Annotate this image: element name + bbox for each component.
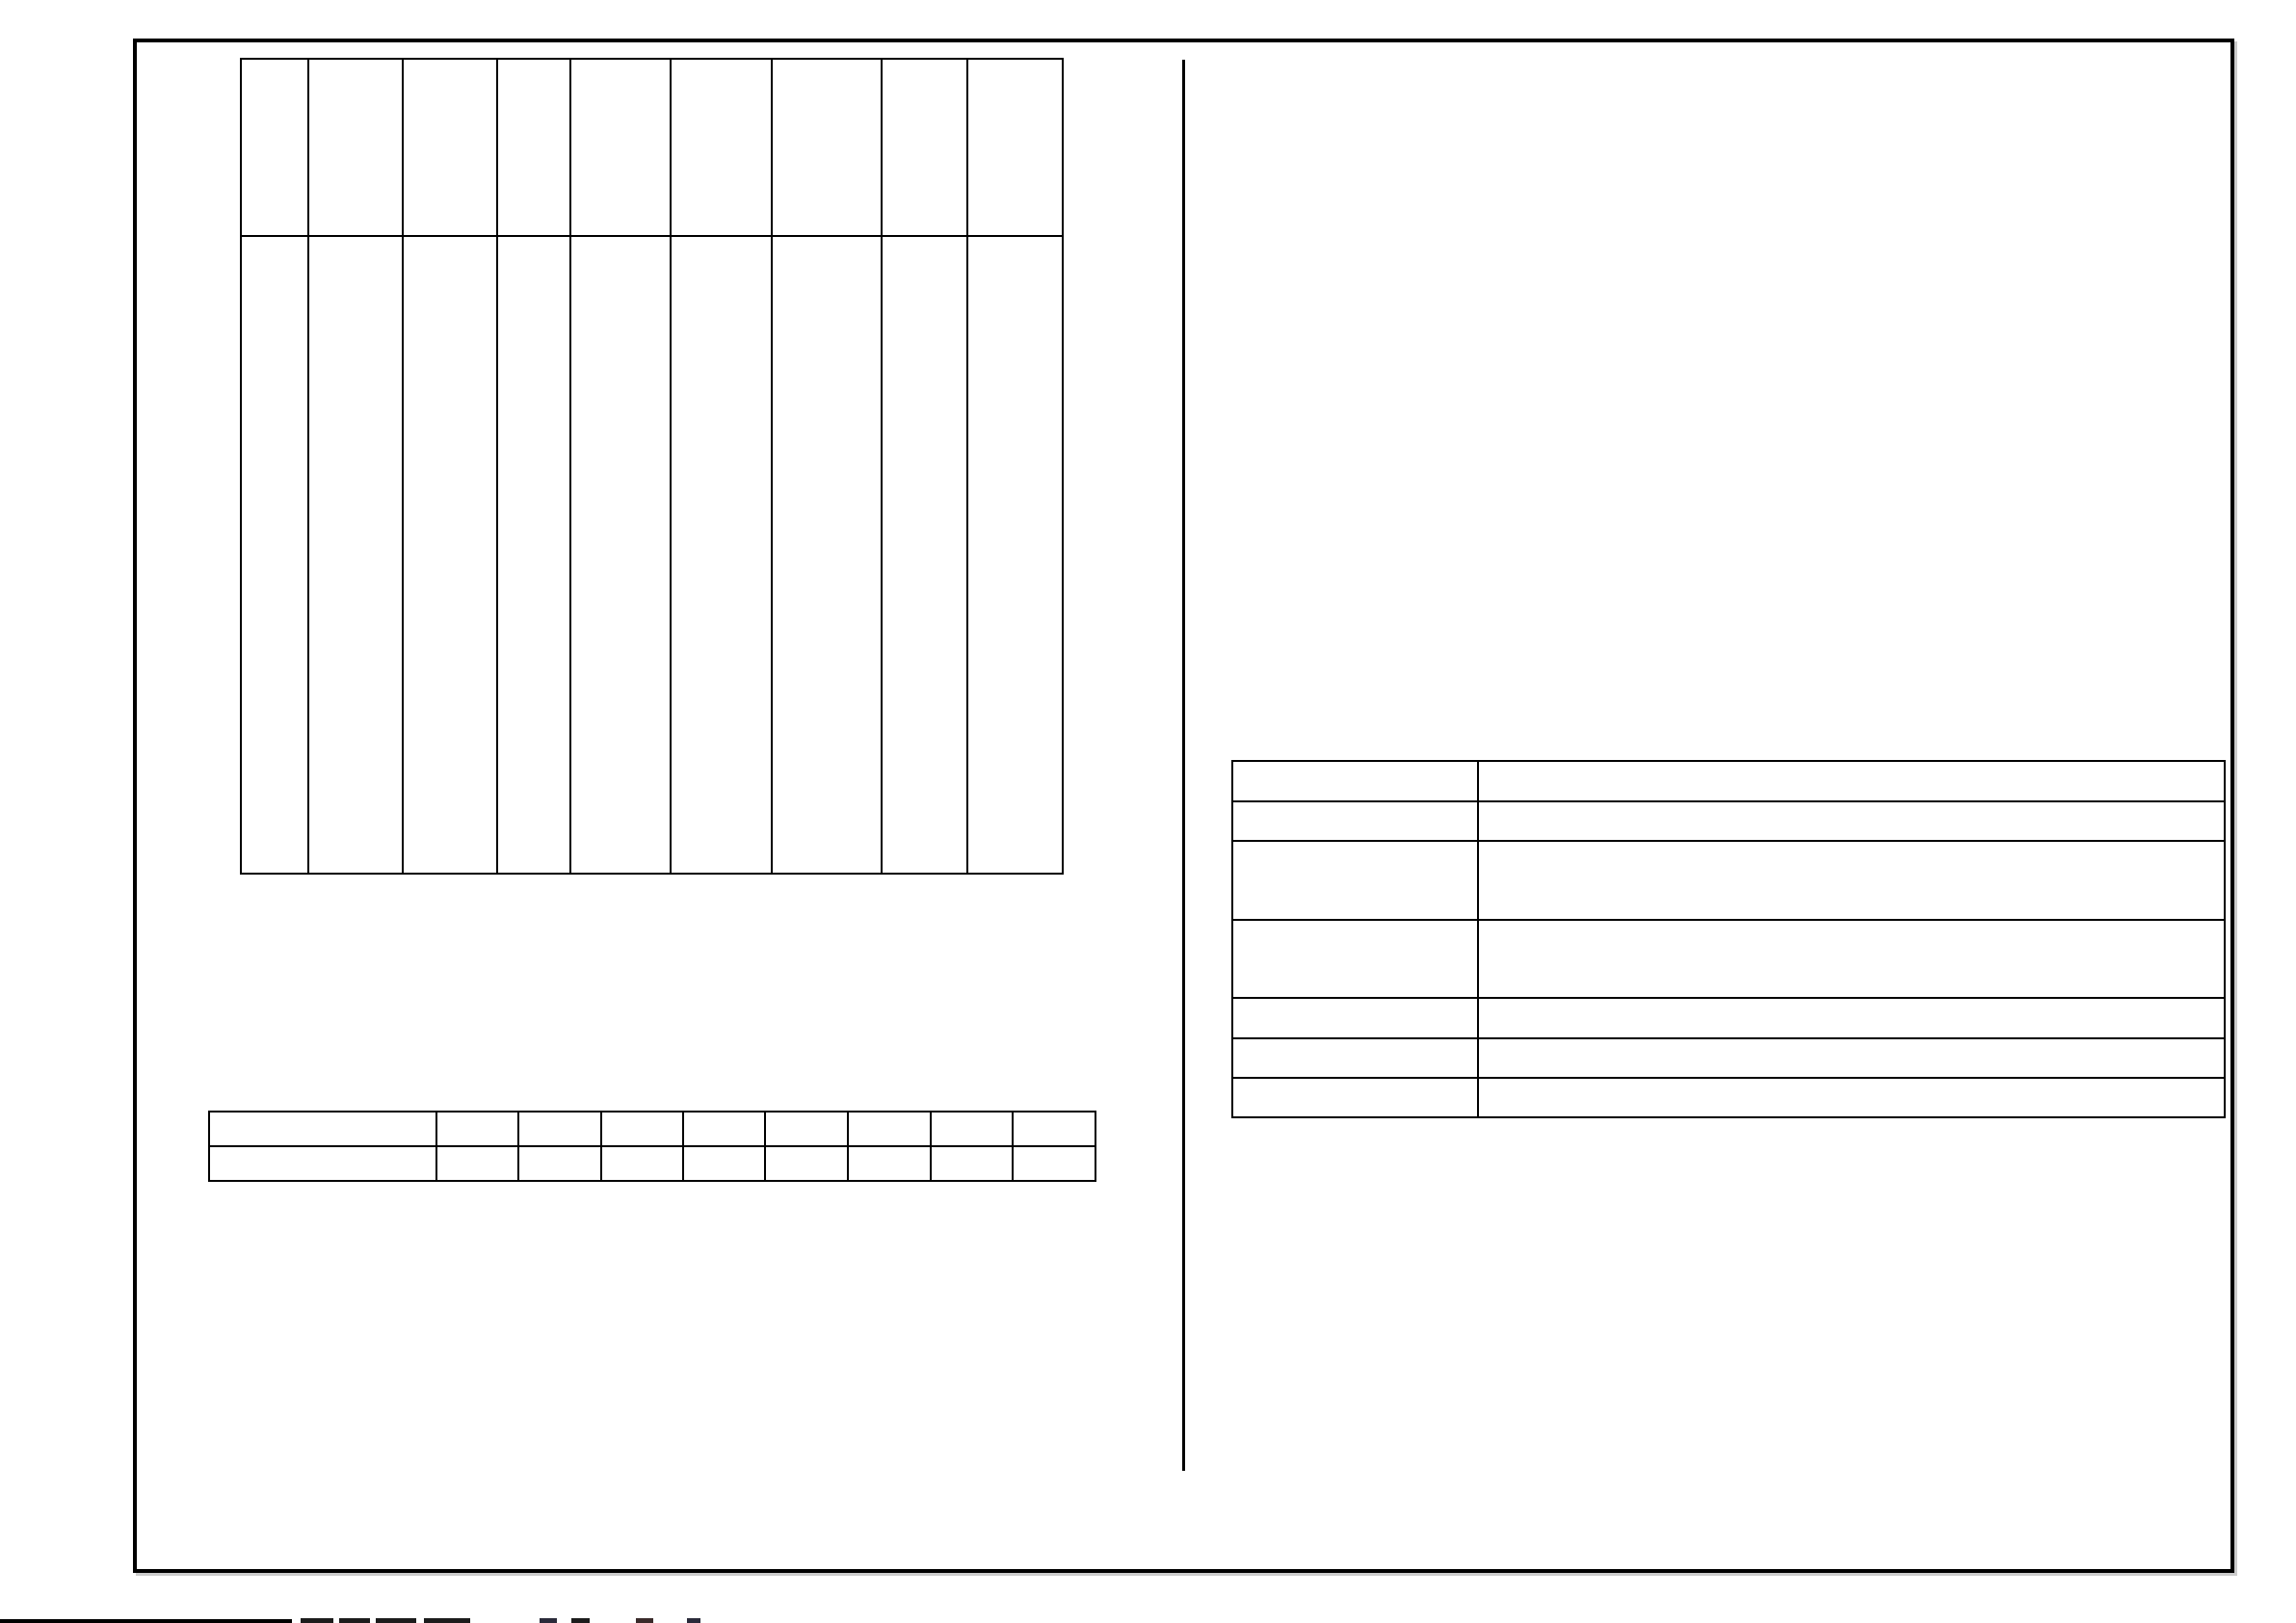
notes-cell [1232, 998, 1478, 1038]
strip-cell [1013, 1146, 1095, 1181]
schedule-body-cell [497, 236, 570, 874]
notes-cell [1478, 841, 2225, 920]
schedule-header-cell [497, 59, 570, 236]
strip-cell [518, 1112, 601, 1146]
footer-text-fragment [376, 1618, 416, 1623]
strip-cell [765, 1112, 848, 1146]
strip-cell [209, 1112, 436, 1146]
schedule-body-cell [882, 236, 967, 874]
strip-cell [601, 1146, 683, 1181]
schedule-body-cell [403, 236, 497, 874]
strip-cell [765, 1146, 848, 1181]
notes-cell [1478, 920, 2225, 998]
strip-table [208, 1111, 1096, 1182]
schedule-header-cell [403, 59, 497, 236]
strip-cell [931, 1146, 1013, 1181]
strip-cell [683, 1146, 765, 1181]
footer-text-fragment [636, 1618, 653, 1623]
notes-cell [1232, 841, 1478, 920]
notes-cell [1478, 1078, 2225, 1117]
notes-cell [1232, 920, 1478, 998]
notes-cell [1232, 801, 1478, 841]
schedule-header-cell [671, 59, 772, 236]
strip-cell [436, 1112, 518, 1146]
schedule-header-cell [882, 59, 967, 236]
sheet-divider-line [1182, 60, 1185, 1471]
schedule-header-cell [570, 59, 671, 236]
strip-cell [436, 1146, 518, 1181]
notes-cell [1478, 761, 2225, 801]
strip-cell [931, 1112, 1013, 1146]
footer-text-fragment [339, 1618, 370, 1623]
schedule-body-cell [671, 236, 772, 874]
footer-text-fragment [424, 1618, 470, 1623]
notes-cell [1478, 801, 2225, 841]
drawing-sheet-canvas [0, 0, 2296, 1623]
schedule-header-cell [308, 59, 403, 236]
schedule-body-cell [570, 236, 671, 874]
notes-cell [1232, 761, 1478, 801]
strip-cell [848, 1146, 931, 1181]
notes-cell [1478, 998, 2225, 1038]
footer-rule-bar [0, 1619, 292, 1623]
footer-text-fragment [687, 1618, 700, 1623]
schedule-header-cell [772, 59, 882, 236]
schedule-header-cell [967, 59, 1063, 236]
schedule-body-cell [772, 236, 882, 874]
notes-cell [1232, 1078, 1478, 1117]
strip-cell [209, 1146, 436, 1181]
notes-cell [1232, 1038, 1478, 1078]
strip-cell [1013, 1112, 1095, 1146]
schedule-body-cell [241, 236, 308, 874]
schedule-header-cell [241, 59, 308, 236]
schedule-body-cell [967, 236, 1063, 874]
notes-table [1231, 760, 2226, 1118]
notes-cell [1478, 1038, 2225, 1078]
strip-cell [848, 1112, 931, 1146]
footer-text-fragment [301, 1618, 333, 1623]
strip-cell [518, 1146, 601, 1181]
strip-cell [601, 1112, 683, 1146]
strip-cell [683, 1112, 765, 1146]
schedule-body-cell [308, 236, 403, 874]
footer-text-fragment [540, 1618, 557, 1623]
footer-text-fragment [571, 1618, 590, 1623]
schedule-table [240, 58, 1064, 875]
